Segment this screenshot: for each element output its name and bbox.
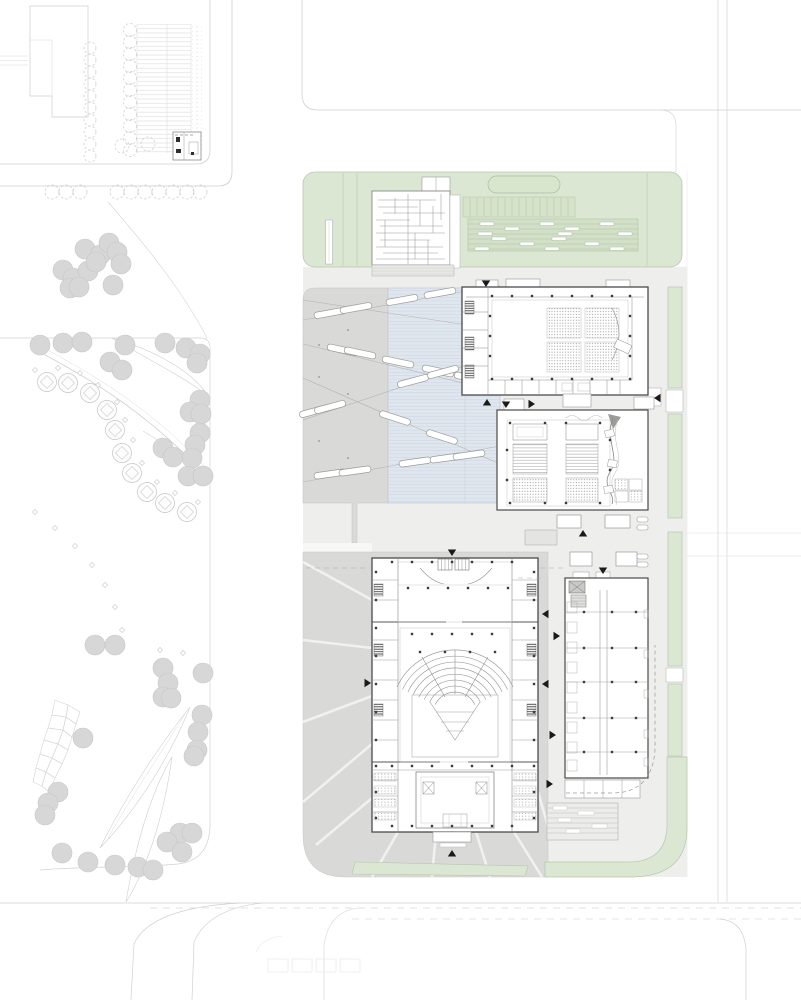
building-2-cinema-block — [497, 394, 654, 510]
south-steps — [547, 803, 618, 840]
stair-core — [465, 301, 474, 314]
site-corner-curb — [660, 110, 676, 172]
street-trees-row — [45, 185, 207, 199]
park-area — [30, 185, 213, 902]
garden-steps — [372, 265, 454, 276]
stair-core — [465, 337, 474, 350]
building-1-concert-hall — [462, 279, 661, 406]
site-plan-page — [0, 0, 801, 1000]
dock-platform — [525, 530, 557, 545]
plaza-walkway — [303, 543, 372, 552]
existing-building-outline — [30, 6, 88, 117]
south-entrance-bay — [433, 832, 471, 842]
loading-dock — [565, 780, 640, 798]
building-4-outer-wall — [565, 578, 648, 778]
roof-garden — [303, 172, 682, 276]
park-trees — [30, 233, 213, 880]
building-3-grand-theater — [372, 558, 538, 847]
site-plan-canvas — [0, 0, 801, 1000]
parking-kiosk-building — [173, 132, 201, 160]
stone-paving-pattern — [33, 700, 80, 792]
parking-area — [0, 6, 202, 162]
sunken-pavilion-plan — [372, 191, 450, 265]
parking-stall-row — [137, 24, 167, 153]
lawn-capsule — [488, 176, 560, 193]
stair-core — [465, 365, 474, 378]
leaf-planting-bed — [126, 757, 172, 902]
